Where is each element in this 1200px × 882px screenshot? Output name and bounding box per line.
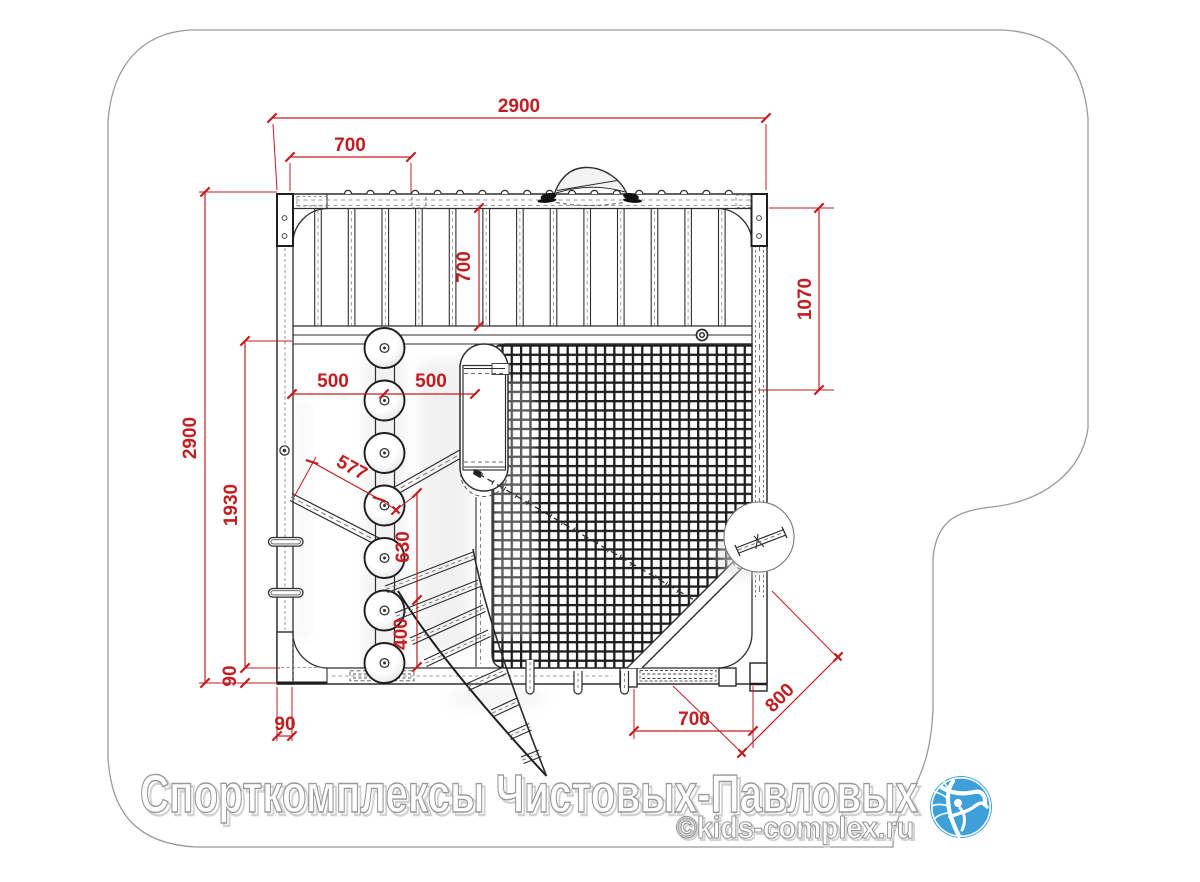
svg-text:1930: 1930	[221, 484, 242, 526]
svg-text:400: 400	[391, 618, 412, 650]
svg-text:90: 90	[220, 665, 241, 686]
svg-text:700: 700	[678, 709, 710, 730]
svg-text:700: 700	[334, 135, 366, 156]
svg-text:©kids-complex.ru: ©kids-complex.ru	[676, 810, 914, 845]
svg-text:90: 90	[274, 714, 295, 735]
svg-text:700: 700	[454, 251, 475, 283]
svg-text:2900: 2900	[498, 96, 540, 117]
svg-text:2900: 2900	[180, 417, 201, 459]
svg-text:500: 500	[415, 371, 447, 392]
svg-text:1070: 1070	[795, 278, 816, 320]
svg-text:500: 500	[317, 371, 349, 392]
svg-text:630: 630	[393, 531, 414, 563]
